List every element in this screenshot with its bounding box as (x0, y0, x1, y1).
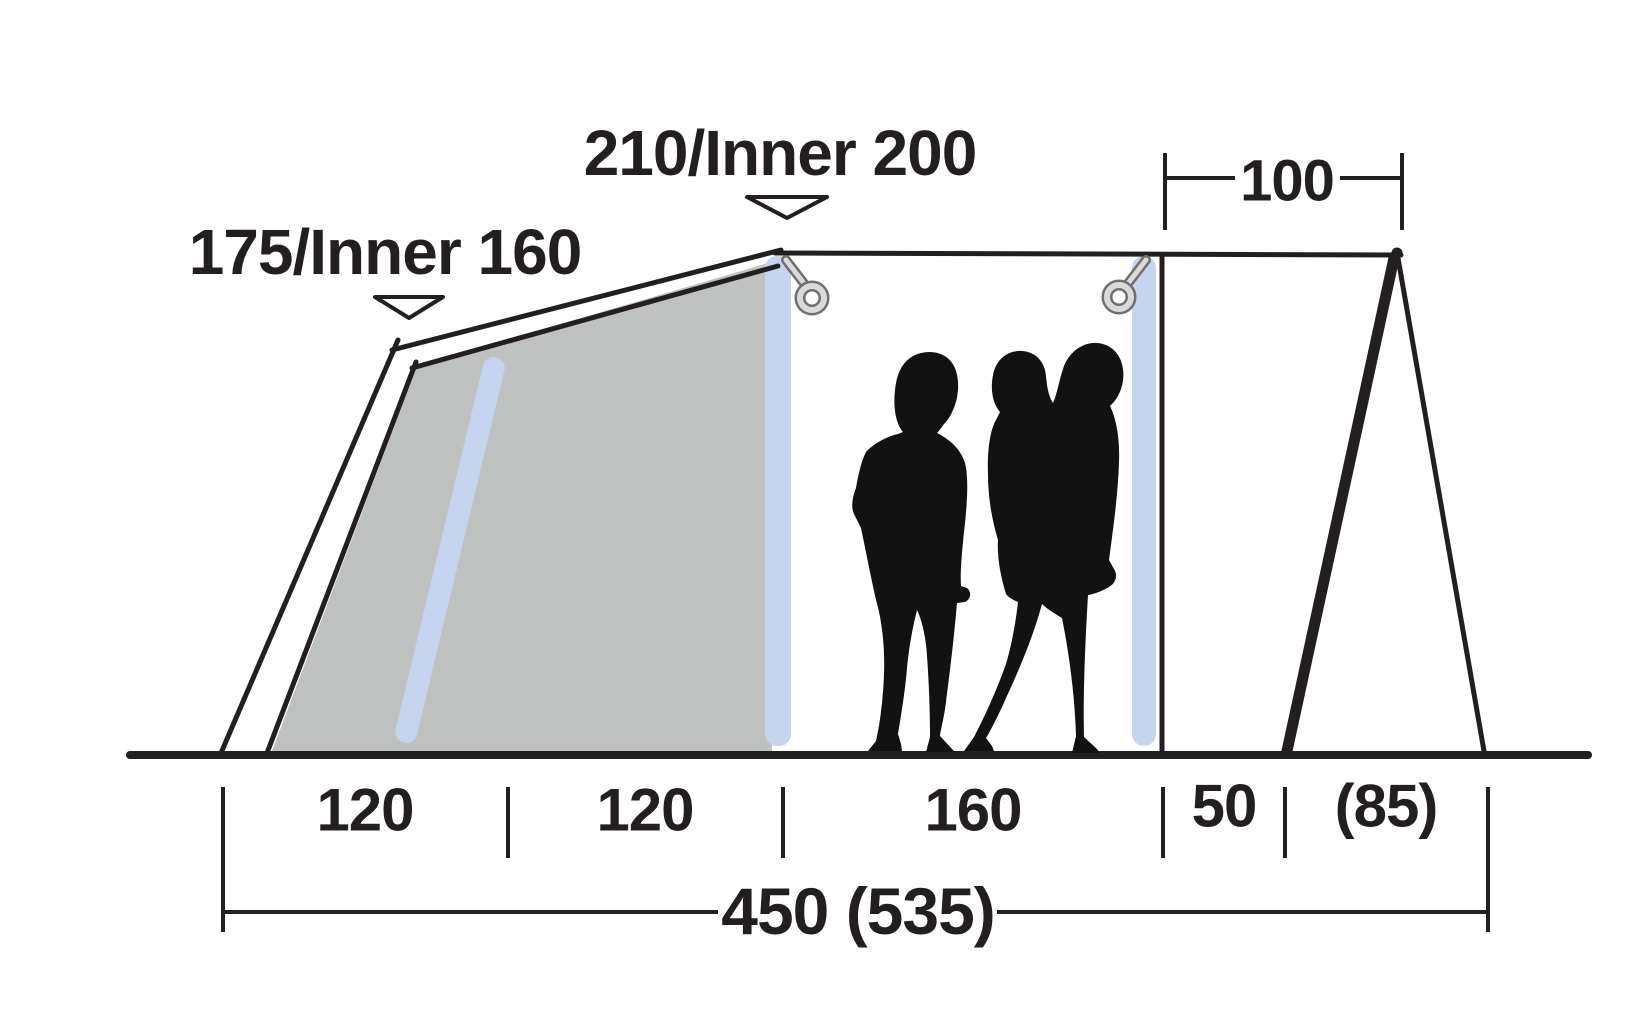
front-pole (1132, 256, 1156, 746)
label-section-85: (85) (1335, 773, 1438, 840)
label-section-120-mid: 120 (596, 777, 693, 844)
tarp-right-pole (1398, 258, 1484, 751)
label-section-50: 50 (1192, 773, 1257, 840)
label-section-120-rear: 120 (316, 777, 413, 844)
ring-hooks (786, 260, 1146, 310)
person-with-child-silhouette (964, 343, 1123, 753)
label-total-length: 450 (535) (721, 874, 995, 948)
people-silhouettes (852, 343, 1123, 753)
ring-hook-left (786, 260, 824, 310)
label-section-160: 160 (924, 777, 1021, 844)
roof-line (775, 253, 1401, 255)
tent-dimension-diagram: 175/Inner 160 210/Inner 200 100 120 120 … (0, 0, 1650, 1018)
label-canopy-depth: 100 (1240, 149, 1334, 214)
tarp-apex-joint (1392, 248, 1402, 258)
peak-pole (765, 256, 791, 746)
diagram-canvas: 175/Inner 160 210/Inner 200 100 120 120 … (0, 0, 1650, 1018)
pointer-triangle-rear (375, 297, 443, 318)
label-rear-height: 175/Inner 160 (189, 216, 582, 288)
pointer-triangle-peak (747, 197, 827, 218)
tarp-left-pole (1287, 258, 1394, 751)
label-peak-height: 210/Inner 200 (584, 117, 977, 189)
person-left-silhouette (852, 352, 970, 752)
